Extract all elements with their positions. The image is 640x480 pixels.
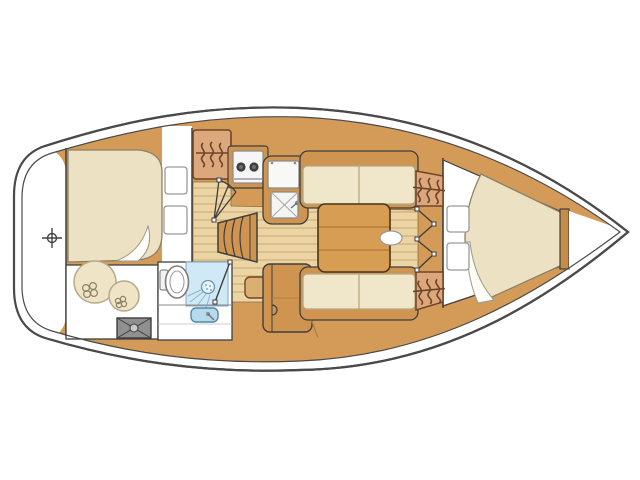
- forward-berth-pillow-2: [447, 243, 469, 270]
- head-compartment: [158, 260, 232, 340]
- salon-settee-port: [300, 151, 418, 208]
- aft-berth-pillow-1: [165, 167, 187, 194]
- galley-sink: [271, 192, 299, 218]
- boat-floorplan: [0, 0, 640, 480]
- salon-table: [318, 204, 402, 272]
- head-sink: [191, 308, 218, 322]
- salon-settee-starboard: [300, 267, 418, 320]
- aft-berth-pillow-2: [164, 206, 187, 234]
- deck-hatch: [117, 318, 151, 338]
- storage-locker: [66, 261, 158, 339]
- galley-icebox: [268, 161, 299, 188]
- galley-stove: [228, 146, 268, 188]
- boat-floorplan-canvas: [0, 0, 640, 480]
- forward-berth-pillow-1: [447, 206, 469, 232]
- table-support: [380, 231, 402, 245]
- forward-bulkhead: [560, 209, 569, 269]
